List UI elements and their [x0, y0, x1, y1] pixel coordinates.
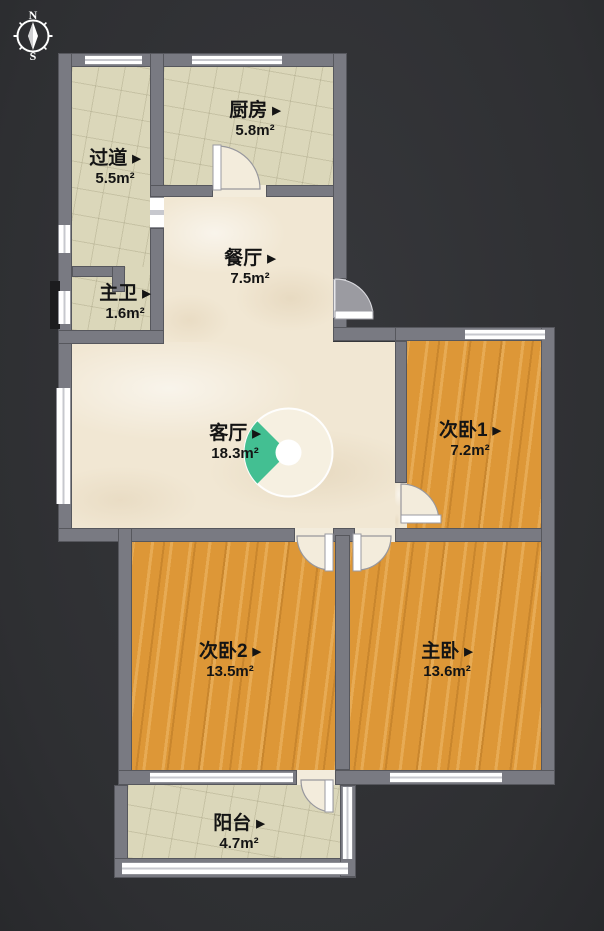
room-arrow-icon: ▶	[132, 153, 140, 165]
room-label-bedroom-1[interactable]: 次卧1▶ 7.2m²	[412, 420, 528, 459]
compass-icon: N S	[8, 4, 58, 62]
room-label-hallway[interactable]: 过道▶ 5.5m²	[57, 148, 173, 187]
wall-right-upper	[333, 53, 347, 279]
entry-door-closed-leaf	[333, 279, 346, 318]
wall-bedroom-divider	[335, 535, 350, 770]
master-bedroom-threshold	[355, 528, 395, 542]
bedroom-2-threshold	[295, 528, 333, 542]
wall-right-lower	[541, 327, 555, 785]
room-arrow-icon: ▶	[256, 818, 264, 830]
compass-south-label: S	[30, 49, 37, 62]
room-arrow-icon: ▶	[252, 428, 260, 440]
room-arrow-icon: ▶	[267, 253, 275, 265]
floor-plan: 厨房▶ 5.8m² 过道▶ 5.5m² 主卫▶ 1.6m² 餐厅▶ 7.5m² …	[0, 0, 604, 931]
room-arrow-icon: ▶	[464, 646, 472, 658]
room-label-living-room[interactable]: 客厅▶ 18.3m²	[177, 423, 293, 462]
balcony-threshold	[297, 770, 335, 785]
room-arrow-icon: ▶	[142, 288, 150, 300]
room-label-dining-room[interactable]: 餐厅▶ 7.5m²	[192, 248, 308, 287]
room-arrow-icon: ▶	[272, 105, 280, 117]
master-bedroom-window	[390, 772, 502, 783]
bedroom-1-window	[465, 329, 545, 340]
kitchen-threshold	[213, 185, 266, 197]
bedroom-1-doorway-floor	[395, 483, 407, 528]
room-label-kitchen[interactable]: 厨房▶ 5.8m²	[197, 100, 313, 139]
wall-bedroom-2-left	[118, 528, 132, 785]
living-room-window	[56, 388, 71, 504]
balcony-right-window	[342, 787, 353, 859]
room-arrow-icon: ▶	[253, 646, 261, 658]
room-label-bedroom-2[interactable]: 次卧2▶ 13.5m²	[172, 641, 288, 680]
wall-bath-bottom	[58, 330, 164, 344]
hallway-dining-opening	[150, 197, 164, 228]
hallway-top-window	[85, 55, 142, 65]
bedroom-2-balcony-window	[150, 772, 293, 783]
balcony-bottom-window	[122, 862, 348, 875]
kitchen-top-window	[192, 55, 282, 65]
wall-bedroom-1-left	[395, 341, 407, 483]
wall-living-bottom-right	[395, 528, 542, 542]
room-label-master-bedroom[interactable]: 主卧▶ 13.6m²	[389, 641, 505, 680]
wall-living-bottom-left	[58, 528, 295, 542]
room-label-balcony[interactable]: 阳台▶ 4.7m²	[181, 813, 297, 852]
room-label-master-bath[interactable]: 主卫▶ 1.6m²	[67, 283, 183, 322]
hallway-left-window	[58, 225, 71, 253]
room-arrow-icon: ▶	[493, 425, 501, 437]
